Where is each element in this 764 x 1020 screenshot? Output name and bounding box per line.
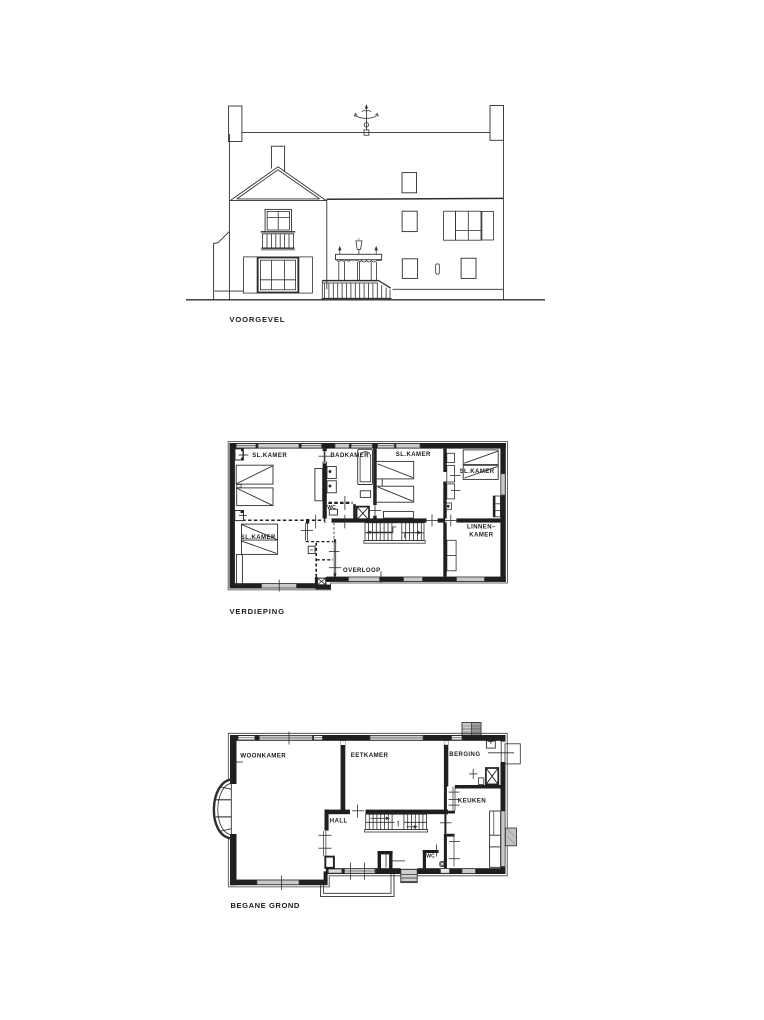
svg-text:BADKAMER: BADKAMER [330, 453, 369, 459]
svg-text:SL.KAMER: SL.KAMER [460, 469, 495, 475]
svg-text:EETKAMER: EETKAMER [351, 752, 389, 759]
svg-text:SL.KAMER: SL.KAMER [396, 452, 431, 458]
svg-text:BERGING: BERGING [449, 752, 480, 758]
svg-text:WC: WC [327, 505, 336, 511]
svg-text:WC: WC [426, 854, 435, 860]
svg-text:WOONKAMER: WOONKAMER [240, 752, 286, 759]
svg-text:VOORGEVEL: VOORGEVEL [230, 315, 286, 324]
svg-text:BEGANE GROND: BEGANE GROND [231, 901, 300, 910]
svg-text:KEUKEN: KEUKEN [458, 797, 486, 804]
svg-text:LINNEN–: LINNEN– [467, 525, 496, 531]
svg-text:KAMER: KAMER [469, 532, 493, 538]
svg-text:OVERLOOP: OVERLOOP [343, 568, 381, 574]
svg-text:HALL: HALL [330, 818, 348, 824]
svg-text:VERDIEPING: VERDIEPING [230, 607, 285, 616]
svg-text:SL.KAMER: SL.KAMER [252, 453, 287, 459]
